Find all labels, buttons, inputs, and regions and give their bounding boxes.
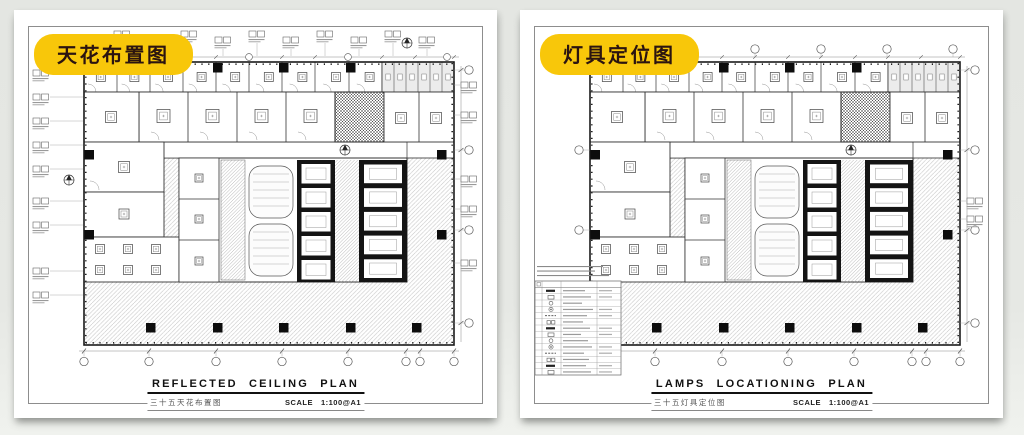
drawing-subtitle-cn: 三十五天花布置图 (150, 397, 222, 408)
floor-plan-drawing-lamps (535, 30, 988, 380)
badge-ceiling-plan-label: 天花布置图 (34, 34, 193, 75)
drawing-scale: SCALE 1:100@A1 (793, 398, 869, 407)
drawing-subtitle-cn: 三十五灯具定位图 (654, 397, 726, 408)
scale-label: SCALE (793, 398, 821, 407)
drawing-title: REFLECTED CEILING PLAN (147, 378, 364, 394)
drawing-subtitle-row: 三十五灯具定位图 SCALE 1:100@A1 (651, 394, 872, 411)
drawing-subtitle-row: 三十五天花布置图 SCALE 1:100@A1 (147, 394, 364, 411)
collage-background: 天花布置图 REFLECTED CEILING PLAN 三十五天花布置图 SC… (0, 0, 1024, 435)
badge-lamps-plan-label: 灯具定位图 (540, 34, 699, 75)
drawing-title: LAMPS LOCATIONING PLAN (651, 378, 872, 394)
scale-value: 1:100@A1 (321, 398, 361, 407)
title-block: REFLECTED CEILING PLAN 三十五天花布置图 SCALE 1:… (147, 378, 364, 411)
sheet-reflected-ceiling-plan: 天花布置图 REFLECTED CEILING PLAN 三十五天花布置图 SC… (14, 10, 497, 418)
scale-value: 1:100@A1 (829, 398, 869, 407)
scale-label: SCALE (285, 398, 313, 407)
drawing-scale: SCALE 1:100@A1 (285, 398, 361, 407)
floor-plan-drawing-ceiling (29, 30, 482, 380)
sheet-lamps-location-plan: 灯具定位图 LAMPS LOCATIONING PLAN 三十五灯具定位图 SC… (520, 10, 1003, 418)
title-block: LAMPS LOCATIONING PLAN 三十五灯具定位图 SCALE 1:… (651, 378, 872, 411)
